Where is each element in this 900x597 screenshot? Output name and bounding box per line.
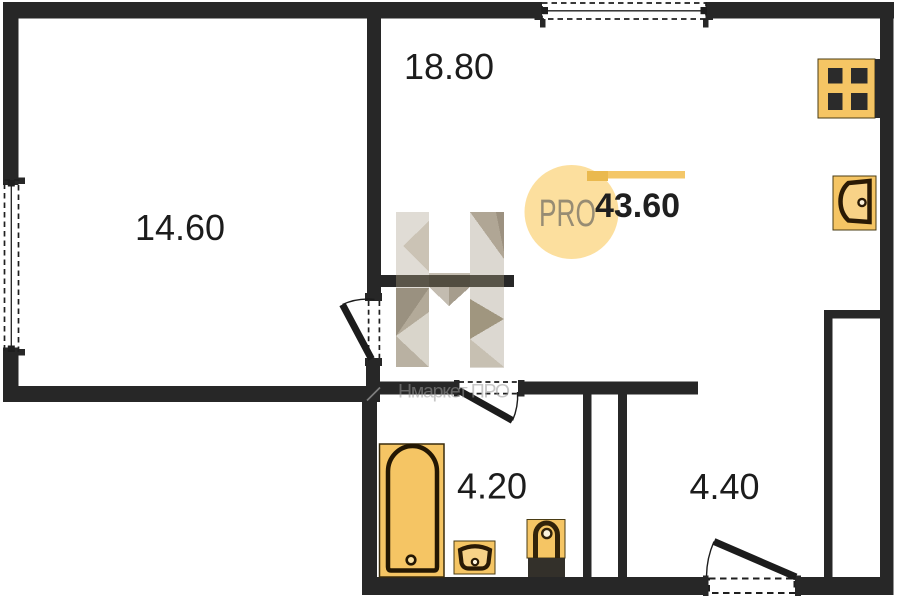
svg-text:4.40: 4.40: [689, 466, 759, 507]
svg-text:Нмаркет ПРО: Нмаркет ПРО: [398, 381, 510, 403]
svg-text:14.60: 14.60: [135, 207, 225, 248]
svg-text:PRO: PRO: [539, 193, 596, 235]
svg-text:43.60: 43.60: [595, 187, 680, 225]
svg-text:18.80: 18.80: [404, 46, 494, 87]
svg-text:4.20: 4.20: [457, 466, 527, 507]
